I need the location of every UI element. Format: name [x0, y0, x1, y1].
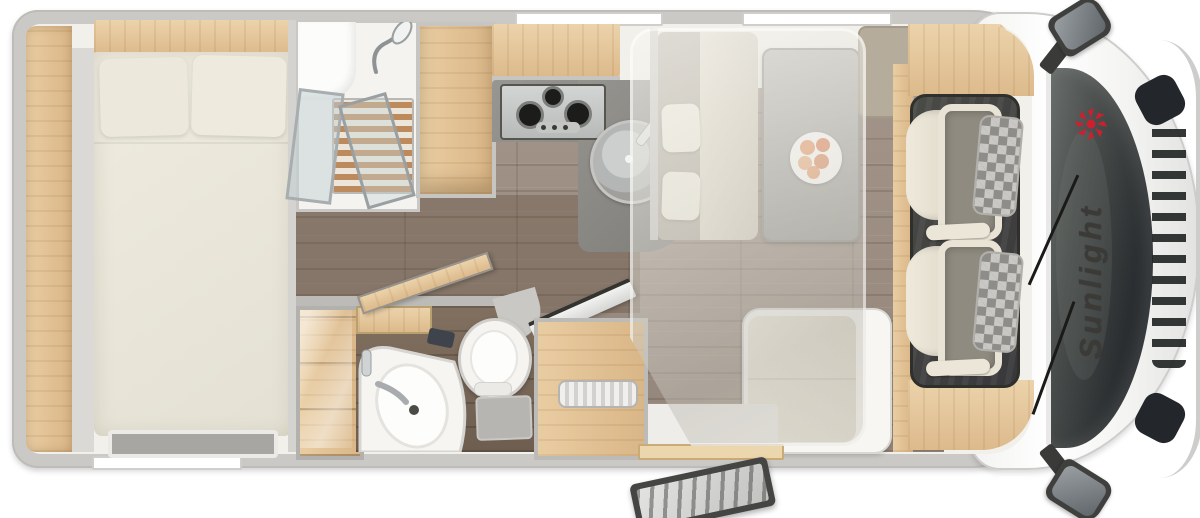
pillow-left: [99, 57, 189, 137]
pillow-right: [191, 55, 287, 137]
motorhome-floorplan: Sunlight: [0, 0, 1200, 518]
shower-head: [366, 22, 414, 76]
entry-door-panel: [636, 463, 769, 518]
hob-knob: [552, 125, 557, 130]
seat-pillow: [972, 250, 1025, 353]
cabinet-glass-sheen: [300, 310, 352, 448]
wing-mirror-bottom: [1032, 438, 1120, 518]
foot-vent: [108, 430, 278, 458]
hob-burner-small: [542, 86, 564, 108]
drop-down-bed-overlay: [630, 28, 866, 446]
brand-logo: Sunlight: [1068, 106, 1114, 418]
side-shelf: [26, 26, 72, 452]
hob-knob: [541, 125, 546, 130]
sheet-fold: [94, 142, 292, 144]
brand-logo-text: Sunlight: [1073, 150, 1109, 412]
mirror-glass: [1051, 0, 1108, 53]
cab-seat-passenger: [904, 100, 1014, 230]
step-stool: [475, 395, 533, 441]
seat-pillow: [972, 114, 1025, 217]
hob-knob: [563, 125, 568, 130]
window-bottom: [92, 456, 242, 470]
bed-frame-rail: [72, 48, 94, 452]
sun-icon: [1073, 106, 1109, 142]
cab-seat-driver: [904, 236, 1014, 366]
wardrobe: [416, 22, 496, 198]
chrome-trim: [1160, 40, 1200, 478]
tambour-door: [558, 380, 638, 408]
window-top-2: [742, 12, 892, 26]
wing-mirror-top: [1036, 0, 1120, 80]
partition-wall: [288, 20, 296, 452]
mirror-glass: [1049, 463, 1109, 518]
overhead-locker: [492, 24, 620, 76]
toilet-bowl: [470, 330, 518, 386]
toilet-hinge: [474, 382, 512, 396]
